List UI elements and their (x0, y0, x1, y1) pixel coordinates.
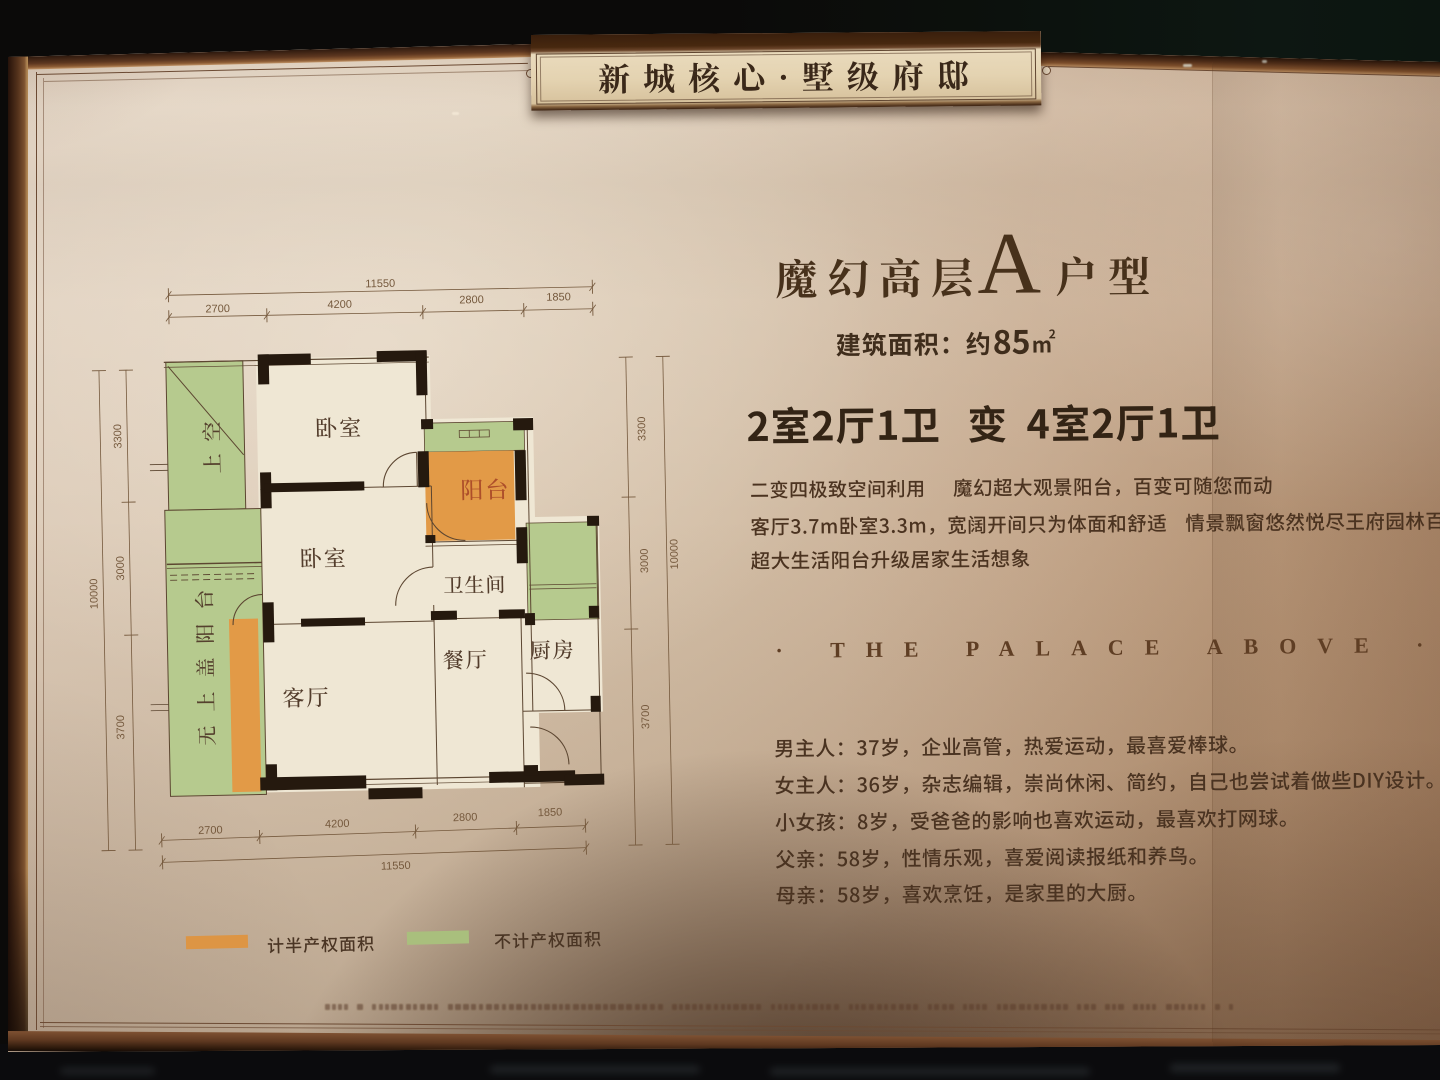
svg-text:3000: 3000 (115, 556, 127, 581)
svg-text:4200: 4200 (327, 299, 352, 311)
svg-text:11550: 11550 (365, 278, 395, 291)
svg-text:2700: 2700 (205, 303, 230, 315)
svg-text:2800: 2800 (459, 294, 484, 306)
svg-text:11550: 11550 (381, 860, 411, 873)
svg-text:3700: 3700 (115, 715, 127, 740)
svg-text:1850: 1850 (538, 806, 563, 819)
svg-text:1850: 1850 (546, 291, 571, 303)
svg-text:2700: 2700 (198, 824, 223, 837)
svg-text:10000: 10000 (668, 539, 681, 570)
svg-text:3700: 3700 (640, 704, 652, 729)
svg-text:4200: 4200 (325, 818, 350, 831)
svg-text:2800: 2800 (453, 811, 478, 824)
svg-text:3300: 3300 (112, 424, 124, 449)
svg-text:· THE PALACE ABOVE ·: · THE PALACE ABOVE · (775, 632, 1423, 663)
svg-text:10000: 10000 (88, 578, 101, 609)
svg-text:3000: 3000 (639, 548, 651, 573)
svg-text:A: A (977, 216, 1041, 314)
svg-text:3300: 3300 (636, 416, 648, 441)
